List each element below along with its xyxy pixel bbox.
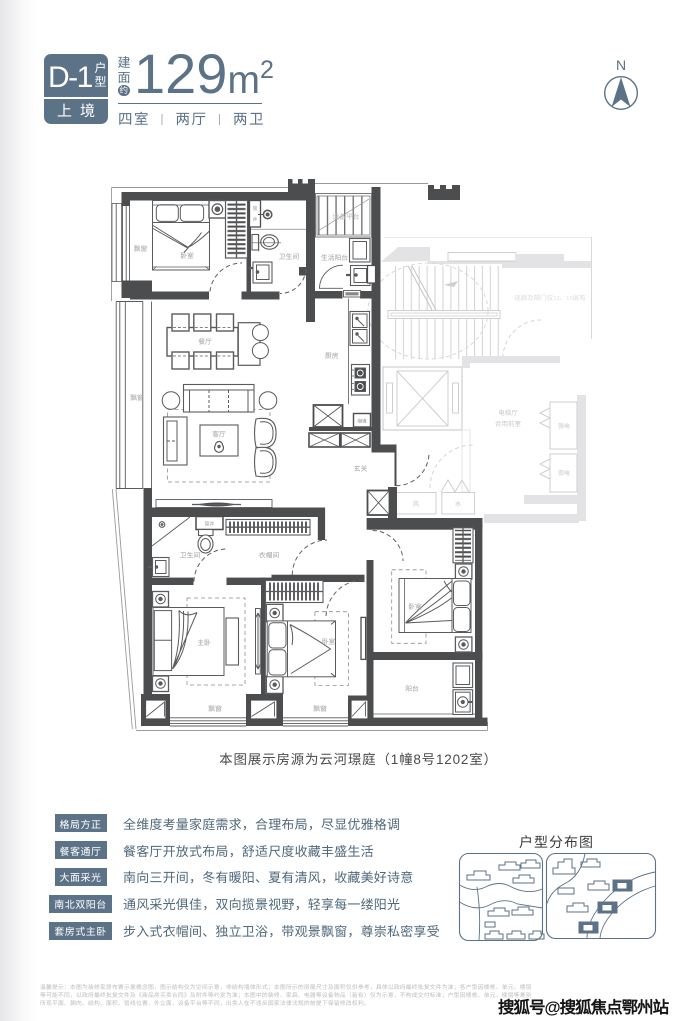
svg-text:连廊及隔门仅12、15层有: 连廊及隔门仅12、15层有	[514, 292, 586, 302]
svg-text:玄关: 玄关	[354, 463, 368, 473]
svg-text:卫生间: 卫生间	[279, 251, 300, 261]
svg-text:卧室: 卧室	[408, 601, 422, 611]
svg-text:管: 管	[252, 205, 257, 212]
svg-text:强电: 强电	[558, 421, 570, 430]
svg-text:飘窗: 飘窗	[134, 243, 148, 253]
svg-text:风: 风	[413, 498, 420, 508]
svg-text:卧室: 卧室	[322, 636, 336, 646]
svg-text:衣帽间: 衣帽间	[259, 550, 280, 560]
svg-text:厨房: 厨房	[325, 350, 339, 360]
svg-text:飘窗: 飘窗	[208, 703, 222, 713]
svg-text:井: 井	[252, 216, 257, 223]
svg-text:电梯厅: 电梯厅	[498, 407, 518, 417]
svg-text:水: 水	[455, 498, 462, 508]
svg-text:设备平台: 设备平台	[332, 211, 359, 221]
svg-text:合用前室: 合用前室	[495, 418, 522, 428]
svg-text:餐厅: 餐厅	[198, 336, 212, 346]
svg-text:卧室: 卧室	[180, 250, 194, 260]
svg-text:客厅: 客厅	[212, 429, 226, 439]
svg-text:生活阳台: 生活阳台	[321, 252, 348, 262]
svg-text:阳台: 阳台	[405, 683, 419, 693]
svg-text:飘窗: 飘窗	[130, 392, 144, 402]
svg-text:烟道: 烟道	[357, 419, 367, 425]
svg-text:主卧: 主卧	[197, 637, 211, 647]
svg-text:弱电: 弱电	[558, 468, 570, 477]
svg-text:管井: 管井	[204, 521, 214, 528]
svg-text:飘窗: 飘窗	[313, 703, 327, 713]
svg-text:卫生间: 卫生间	[180, 550, 201, 560]
